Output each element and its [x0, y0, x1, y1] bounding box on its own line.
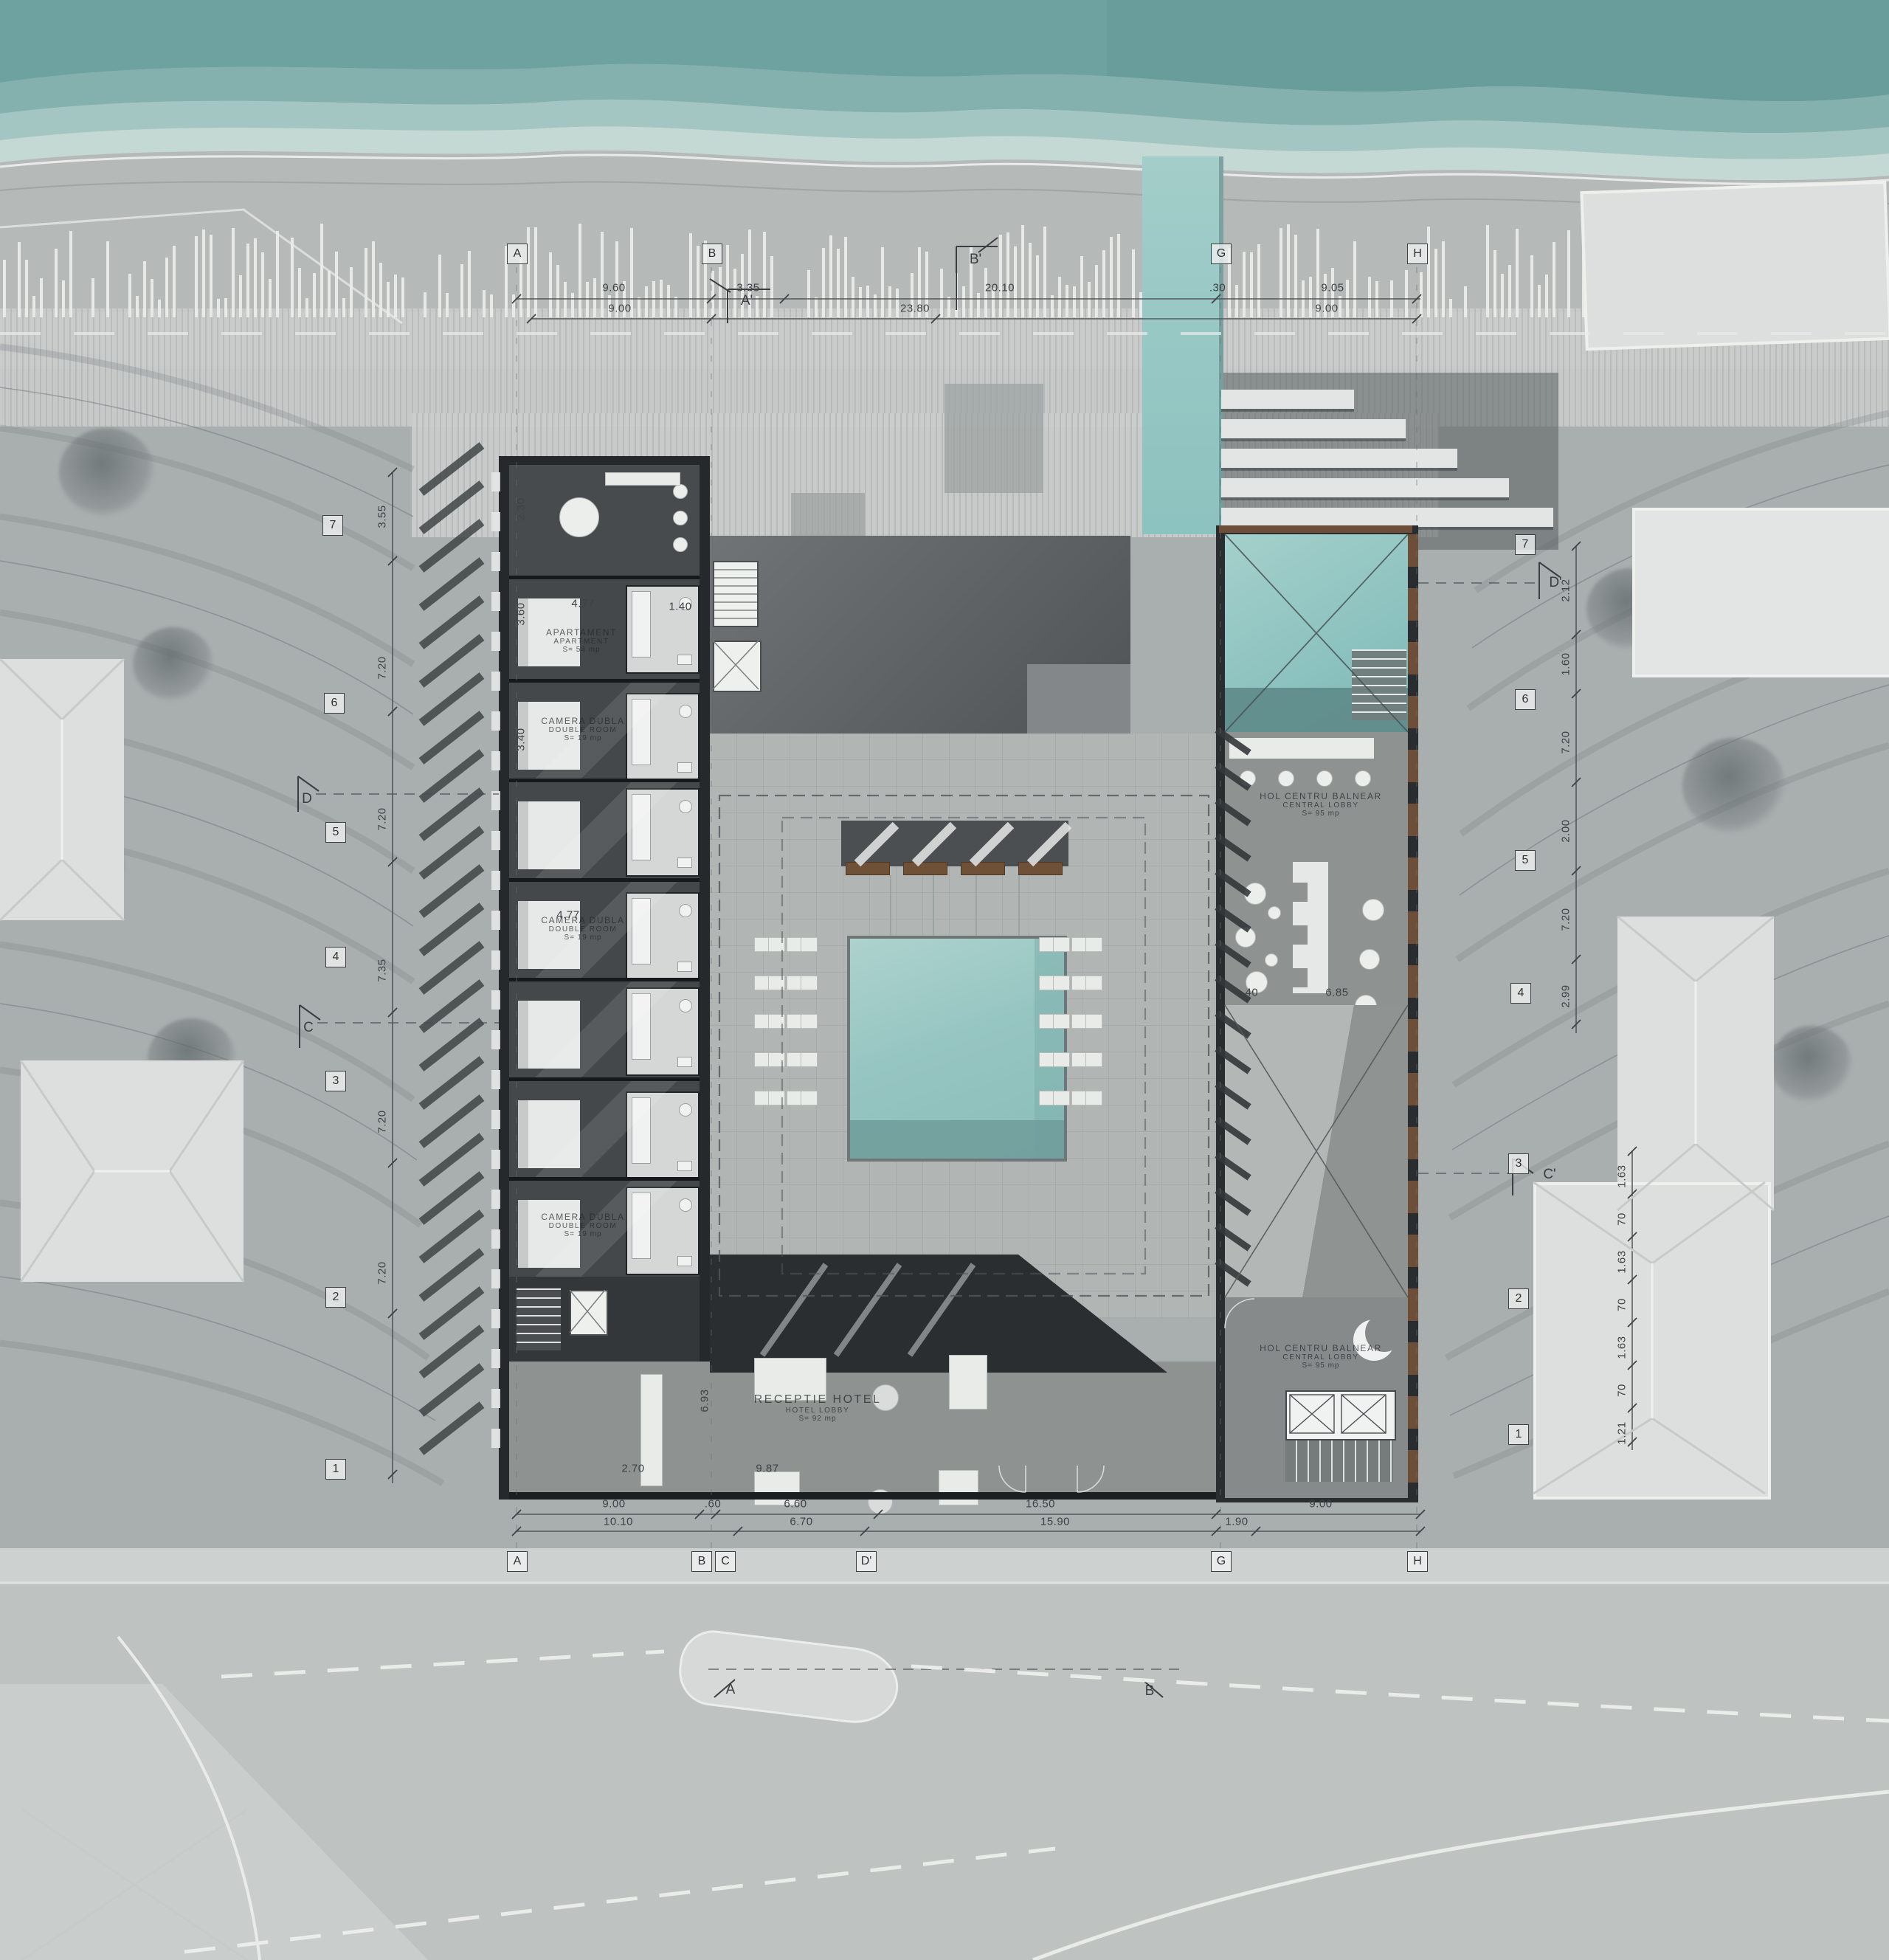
dim-label: 1.21: [1616, 1421, 1629, 1444]
room-name-en: CENTRAL LOBBY: [1260, 801, 1382, 810]
section-marker-a: A: [726, 1682, 736, 1698]
dim-label: 9.05: [1321, 282, 1344, 294]
room-name-en: APARTMENT: [546, 638, 617, 646]
grid-label: 4: [333, 950, 339, 964]
dim-label: .30: [1209, 282, 1226, 294]
room-label-apartament: APARTAMENT APARTMENT S= 54 mp: [546, 627, 617, 654]
grid-bubble-left-1: 1: [325, 1459, 346, 1480]
grid-label: A: [514, 1555, 522, 1568]
grid-bubble-right-1: 1: [1508, 1424, 1529, 1445]
dim-label: 2.12: [1560, 579, 1572, 601]
room-label-hol-centru: HOL CENTRU BALNEAR CENTRAL LOBBY S= 95 m…: [1260, 791, 1382, 818]
dim-label: 7.20: [1560, 731, 1572, 753]
grid-bubble-right-2: 2: [1508, 1288, 1529, 1309]
dim-label: 6.93: [699, 1389, 711, 1412]
grid-bubble-right-4: 4: [1510, 983, 1531, 1004]
dim-label: 20.10: [985, 282, 1015, 294]
room-name: APARTAMENT: [546, 627, 617, 638]
room-name: CAMERA DUBLA: [541, 915, 624, 925]
dim-label: 1.63: [1616, 1336, 1629, 1359]
annotation-linework: [0, 0, 1889, 1960]
grid-label: B: [698, 1555, 706, 1568]
dim-label: 15.90: [1040, 1516, 1070, 1528]
grid-label: B: [708, 247, 716, 260]
room-label-receptie: RECEPTIE HOTEL HOTEL LOBBY S= 92 mp: [754, 1393, 882, 1423]
room-name: CAMERA DUBLA: [541, 716, 624, 726]
dim-label: 1.90: [1225, 1516, 1248, 1528]
grid-label: 2: [1516, 1292, 1522, 1305]
dim-label: 9.00: [602, 1498, 625, 1511]
grid-bubble-right-7: 7: [1515, 534, 1536, 555]
room-area: S= 19 mp: [541, 734, 624, 742]
room-area: S= 19 mp: [541, 1230, 624, 1238]
dim-label: 3.55: [376, 505, 389, 528]
grid-label: C: [721, 1555, 730, 1568]
dim-label: 9.87: [756, 1463, 778, 1475]
dim-label: 3.35: [736, 282, 759, 294]
dim-label: 23.80: [900, 303, 930, 315]
room-area: S= 19 mp: [541, 934, 624, 942]
grid-label: 1: [333, 1463, 339, 1476]
room-name-en: DOUBLE ROOM: [541, 1222, 624, 1230]
room-label-hol-centru: HOL CENTRU BALNEAR CENTRAL LOBBY S= 95 m…: [1260, 1343, 1382, 1370]
dim-label: 70: [1616, 1384, 1629, 1397]
dim-label: 70: [1616, 1212, 1629, 1226]
room-area: S= 92 mp: [754, 1415, 882, 1423]
grid-label: 6: [331, 697, 338, 710]
section-marker-c-prime: C': [1543, 1167, 1555, 1183]
grid-label: D': [861, 1555, 872, 1568]
room-name: HOL CENTRU BALNEAR: [1260, 1343, 1382, 1353]
dim-label: 2.99: [1560, 984, 1572, 1007]
grid-label: 6: [1522, 693, 1529, 706]
dim-label: 70: [1616, 1298, 1629, 1311]
grid-bubble-bottom-d: D': [856, 1551, 877, 1572]
grid-label: 5: [1522, 854, 1529, 867]
dim-label: 9.00: [1309, 1498, 1332, 1511]
room-name-en: HOTEL LOBBY: [754, 1407, 882, 1415]
grid-label: 4: [1518, 987, 1524, 1000]
dim-label: 1.60: [1560, 652, 1572, 675]
dim-label: 7.20: [376, 656, 389, 679]
room-label-camera-dubla: CAMERA DUBLA DOUBLE ROOM S= 19 mp: [541, 716, 624, 742]
dim-label: 7.20: [376, 1261, 389, 1284]
grid-bubble-left-2: 2: [325, 1287, 346, 1308]
dim-label: 16.50: [1026, 1498, 1055, 1511]
dim-label: 6.70: [790, 1516, 812, 1528]
dim-label: .40: [1242, 987, 1258, 999]
grid-label: 7: [1522, 538, 1529, 551]
grid-bubble-left-4: 4: [325, 947, 346, 967]
section-marker-c: C: [303, 1020, 314, 1036]
grid-label: G: [1217, 247, 1226, 260]
dim-label: 9.60: [602, 282, 625, 294]
dim-label: 1.63: [1616, 1250, 1629, 1273]
grid-label: A: [514, 247, 522, 260]
dim-label: 2.30: [515, 497, 528, 520]
grid-bubble-left-7: 7: [322, 515, 343, 536]
room-name-en: CENTRAL LOBBY: [1260, 1353, 1382, 1362]
section-marker-a-prime: A': [741, 293, 753, 309]
room-name: RECEPTIE HOTEL: [754, 1393, 882, 1407]
dim-label: 7.20: [376, 807, 389, 830]
room-label-camera-dubla: CAMERA DUBLA DOUBLE ROOM S= 19 mp: [541, 1212, 624, 1238]
section-marker-d: D: [302, 791, 312, 807]
room-name: HOL CENTRU BALNEAR: [1260, 791, 1382, 801]
dim-label: .60: [705, 1498, 721, 1511]
grid-label: H: [1413, 247, 1422, 260]
grid-bubble-right-6: 6: [1515, 689, 1536, 710]
dim-label: 1.40: [669, 601, 691, 613]
grid-bubble-top-g: G: [1211, 244, 1232, 264]
grid-bubble-right-5: 5: [1515, 850, 1536, 871]
grid-bubble-top-b: B: [702, 244, 722, 264]
room-label-camera-dubla: CAMERA DUBLA DOUBLE ROOM S= 19 mp: [541, 915, 624, 942]
section-marker-b-prime: B': [970, 252, 981, 268]
grid-bubble-top-h: H: [1407, 244, 1428, 264]
grid-bubble-right-3: 3: [1508, 1153, 1529, 1174]
section-marker-b: B: [1145, 1683, 1155, 1700]
grid-label: 1: [1516, 1428, 1522, 1441]
room-area: S= 54 mp: [546, 646, 617, 654]
grid-bubble-bottom-b: B: [691, 1551, 712, 1572]
grid-label: H: [1413, 1555, 1422, 1568]
dim-label: 4.77: [556, 909, 579, 922]
grid-label: G: [1217, 1555, 1226, 1568]
dim-label: 9.00: [1315, 303, 1338, 315]
dim-label: 1.63: [1616, 1164, 1629, 1187]
grid-bubble-left-5: 5: [325, 822, 346, 843]
dim-label: 6.60: [784, 1498, 807, 1511]
dim-label: 2.00: [1560, 819, 1572, 842]
grid-bubble-top-a: A: [507, 244, 528, 264]
grid-label: 3: [1516, 1157, 1522, 1170]
grid-label: 7: [330, 519, 336, 532]
room-area: S= 95 mp: [1260, 810, 1382, 818]
grid-label: 2: [333, 1291, 339, 1304]
dim-label: 7.20: [1560, 908, 1572, 931]
dim-label: 3.60: [515, 602, 528, 625]
dim-label: 7.35: [376, 959, 389, 981]
room-name: CAMERA DUBLA: [541, 1212, 624, 1222]
grid-bubble-bottom-g: G: [1211, 1551, 1232, 1572]
grid-bubble-left-6: 6: [324, 693, 345, 714]
dim-label: 4.77: [571, 598, 594, 610]
grid-label: 5: [333, 826, 339, 839]
grid-bubble-left-3: 3: [325, 1071, 346, 1091]
grid-bubble-bottom-a: A: [507, 1551, 528, 1572]
grid-bubble-bottom-c: C: [715, 1551, 736, 1572]
grid-label: 3: [333, 1074, 339, 1088]
dim-label: 9.00: [608, 303, 631, 315]
site-plan-canvas: A B G H A B C D' G H 7 6 5 4 3 2 1 7 6 5…: [0, 0, 1889, 1960]
dim-label: 2.70: [621, 1463, 644, 1475]
dim-label: 7.20: [376, 1110, 389, 1133]
dim-label: 10.10: [604, 1516, 633, 1528]
dim-label: 3.40: [515, 728, 528, 750]
room-area: S= 95 mp: [1260, 1362, 1382, 1370]
dim-label: 6.85: [1325, 987, 1348, 999]
room-name-en: DOUBLE ROOM: [541, 925, 624, 934]
room-name-en: DOUBLE ROOM: [541, 726, 624, 734]
grid-bubble-bottom-h: H: [1407, 1551, 1428, 1572]
